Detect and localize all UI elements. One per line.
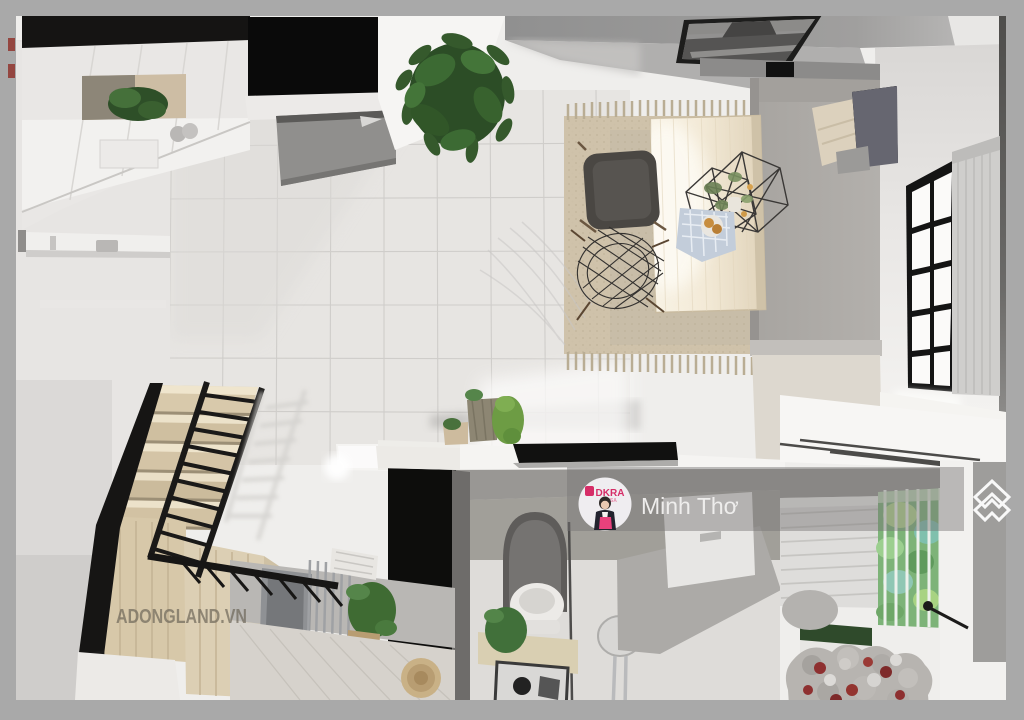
svg-text:Minh Thơ: Minh Thơ — [641, 493, 739, 519]
svg-text:ADONGLAND.VN: ADONGLAND.VN — [116, 606, 247, 628]
